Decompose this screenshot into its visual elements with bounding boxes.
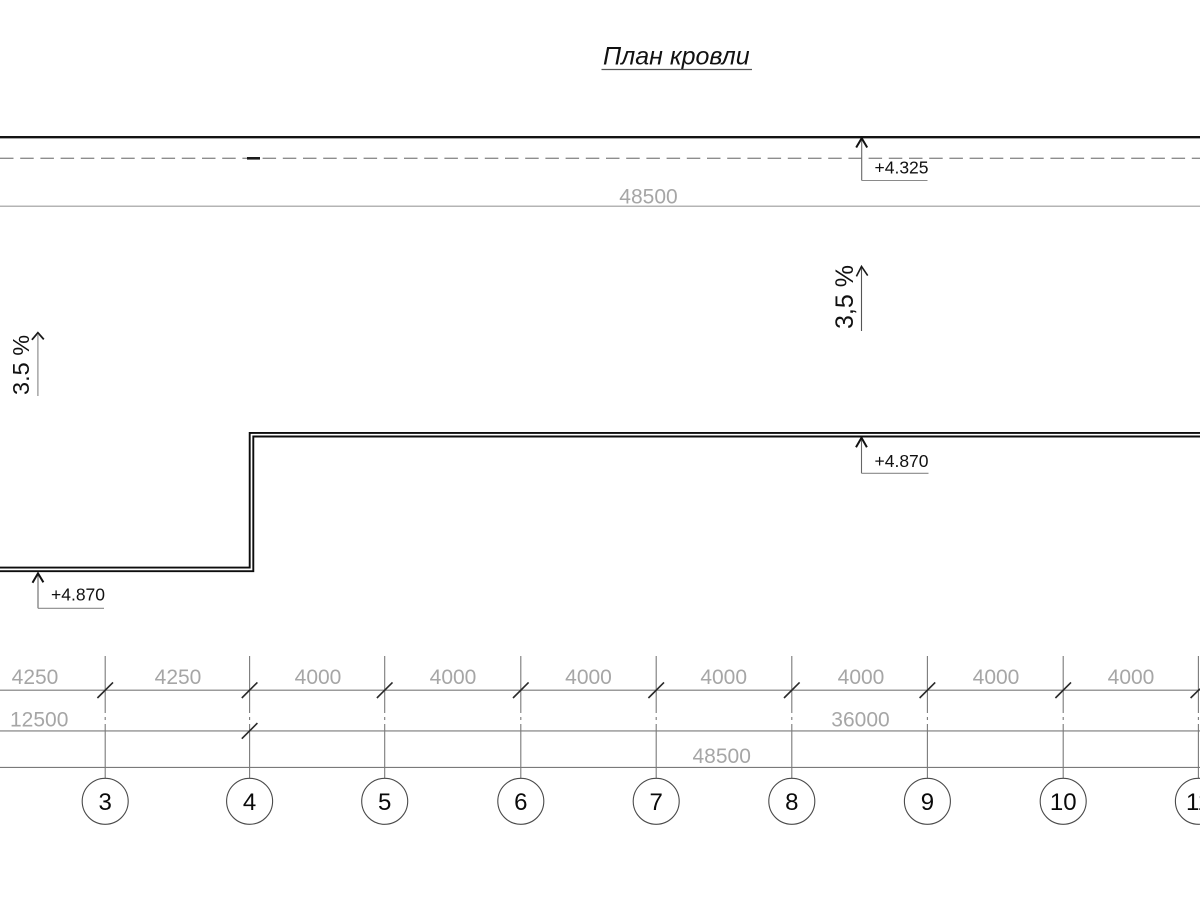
svg-text:11: 11: [1186, 789, 1200, 816]
svg-text:4000: 4000: [430, 666, 477, 689]
svg-text:3: 3: [99, 789, 112, 816]
svg-text:4000: 4000: [1108, 666, 1155, 689]
svg-text:12500: 12500: [10, 709, 68, 732]
svg-text:3,5 %: 3,5 %: [831, 265, 859, 329]
svg-text:4250: 4250: [12, 666, 59, 689]
svg-text:6: 6: [514, 789, 527, 816]
svg-text:7: 7: [650, 789, 663, 816]
svg-text:4250: 4250: [155, 666, 202, 689]
svg-text:+4.325: +4.325: [875, 157, 929, 177]
svg-text:4000: 4000: [565, 666, 612, 689]
svg-text:36000: 36000: [831, 709, 889, 732]
svg-text:8: 8: [785, 789, 798, 816]
svg-text:4000: 4000: [295, 666, 342, 689]
svg-text:План кровли: План кровли: [603, 43, 750, 71]
svg-text:3.5 %: 3.5 %: [8, 335, 34, 395]
svg-text:+4.870: +4.870: [875, 451, 929, 471]
svg-text:4000: 4000: [838, 666, 885, 689]
svg-text:+4.870: +4.870: [51, 585, 105, 605]
svg-text:4: 4: [243, 789, 256, 816]
svg-text:4000: 4000: [700, 666, 747, 689]
svg-text:5: 5: [378, 789, 391, 816]
svg-text:48500: 48500: [619, 186, 677, 209]
svg-text:9: 9: [921, 789, 934, 816]
svg-text:10: 10: [1050, 789, 1077, 816]
svg-text:4000: 4000: [973, 666, 1020, 689]
svg-text:48500: 48500: [692, 745, 750, 768]
